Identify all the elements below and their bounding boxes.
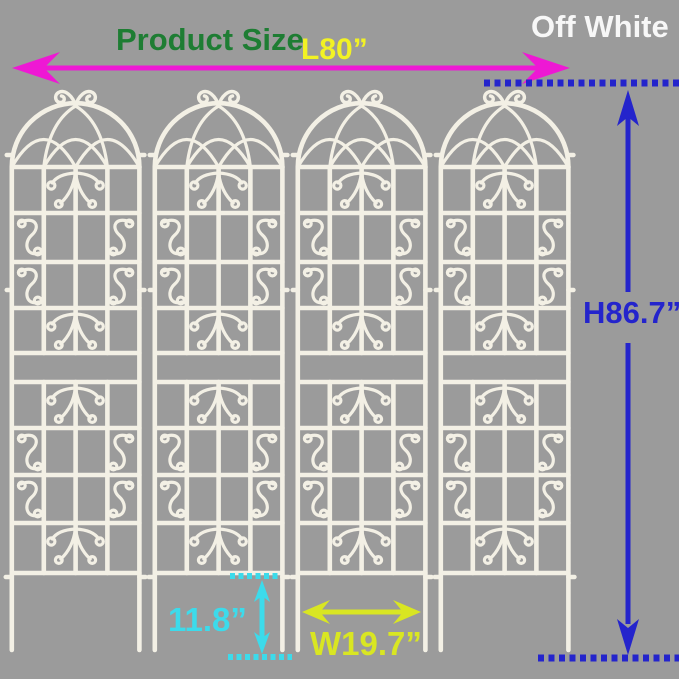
product-size-title: Product Size (116, 24, 304, 55)
product-dimension-diagram: Product Size L80” Off White H86.7” 11.8”… (0, 0, 679, 679)
width-dimension-label: W19.7” (310, 627, 422, 660)
trellis-graphic (0, 0, 679, 679)
color-name-label: Off White (531, 11, 669, 42)
trellis-panel-3 (292, 92, 432, 650)
height-dimension-label: H86.7” (583, 297, 679, 328)
height-arrow (617, 90, 639, 655)
width-arrow (302, 600, 421, 624)
depth-arrow (254, 580, 270, 654)
length-dimension-label: L80” (301, 35, 368, 65)
trellis-panel-4 (435, 92, 575, 650)
ground-depth-dimension-label: 11.8” (168, 603, 247, 636)
trellis-panel-1 (6, 92, 146, 650)
trellis-panel-2 (149, 92, 289, 650)
